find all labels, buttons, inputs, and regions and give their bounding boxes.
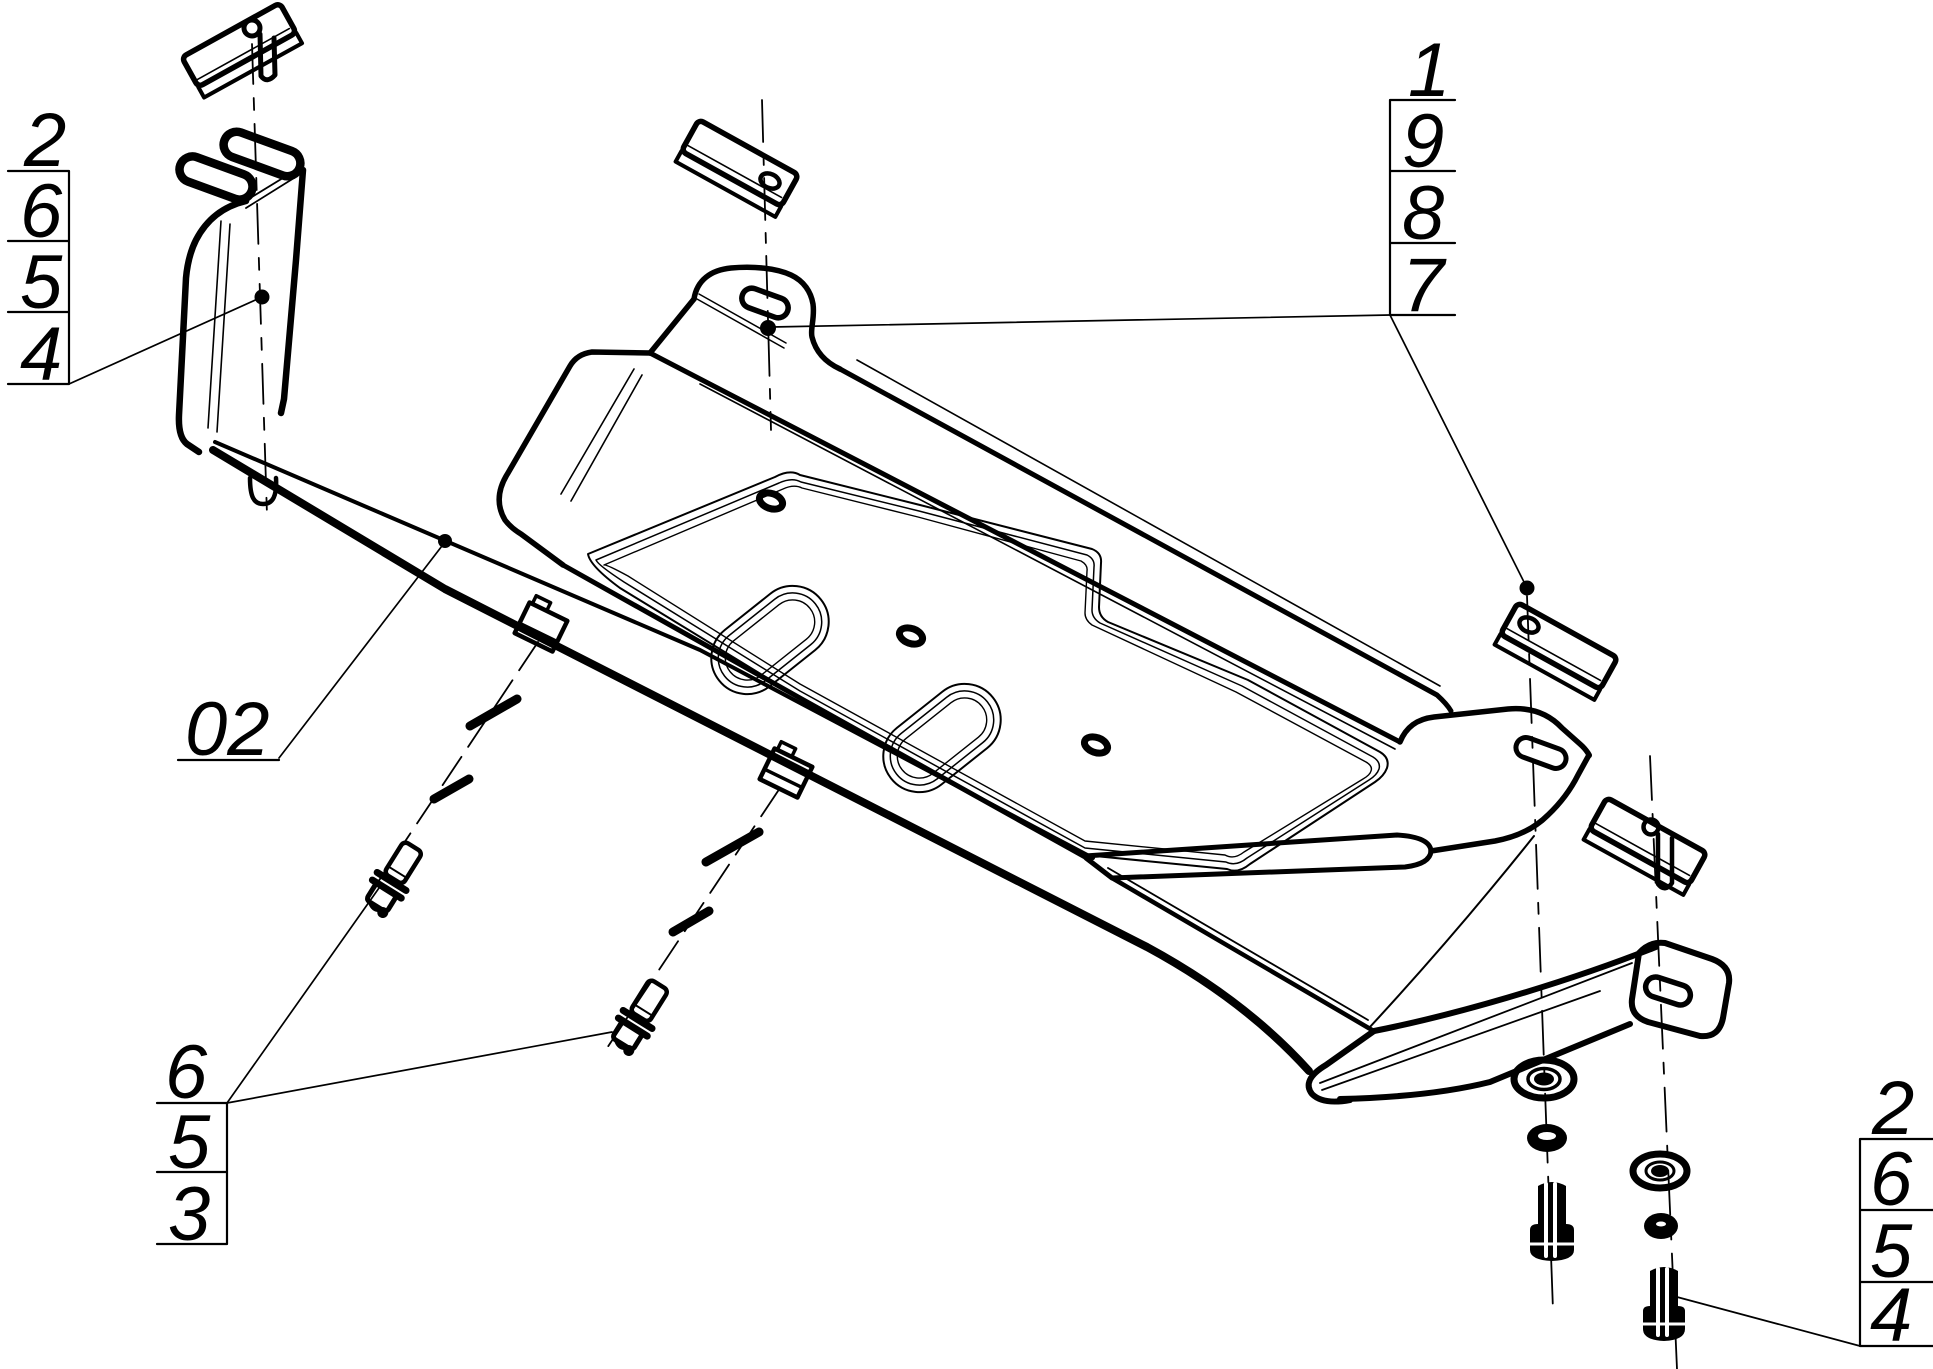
- svg-text:4: 4: [1870, 1273, 1912, 1358]
- svg-text:3: 3: [168, 1172, 210, 1257]
- svg-text:4: 4: [20, 312, 62, 397]
- svg-text:7: 7: [1402, 243, 1447, 328]
